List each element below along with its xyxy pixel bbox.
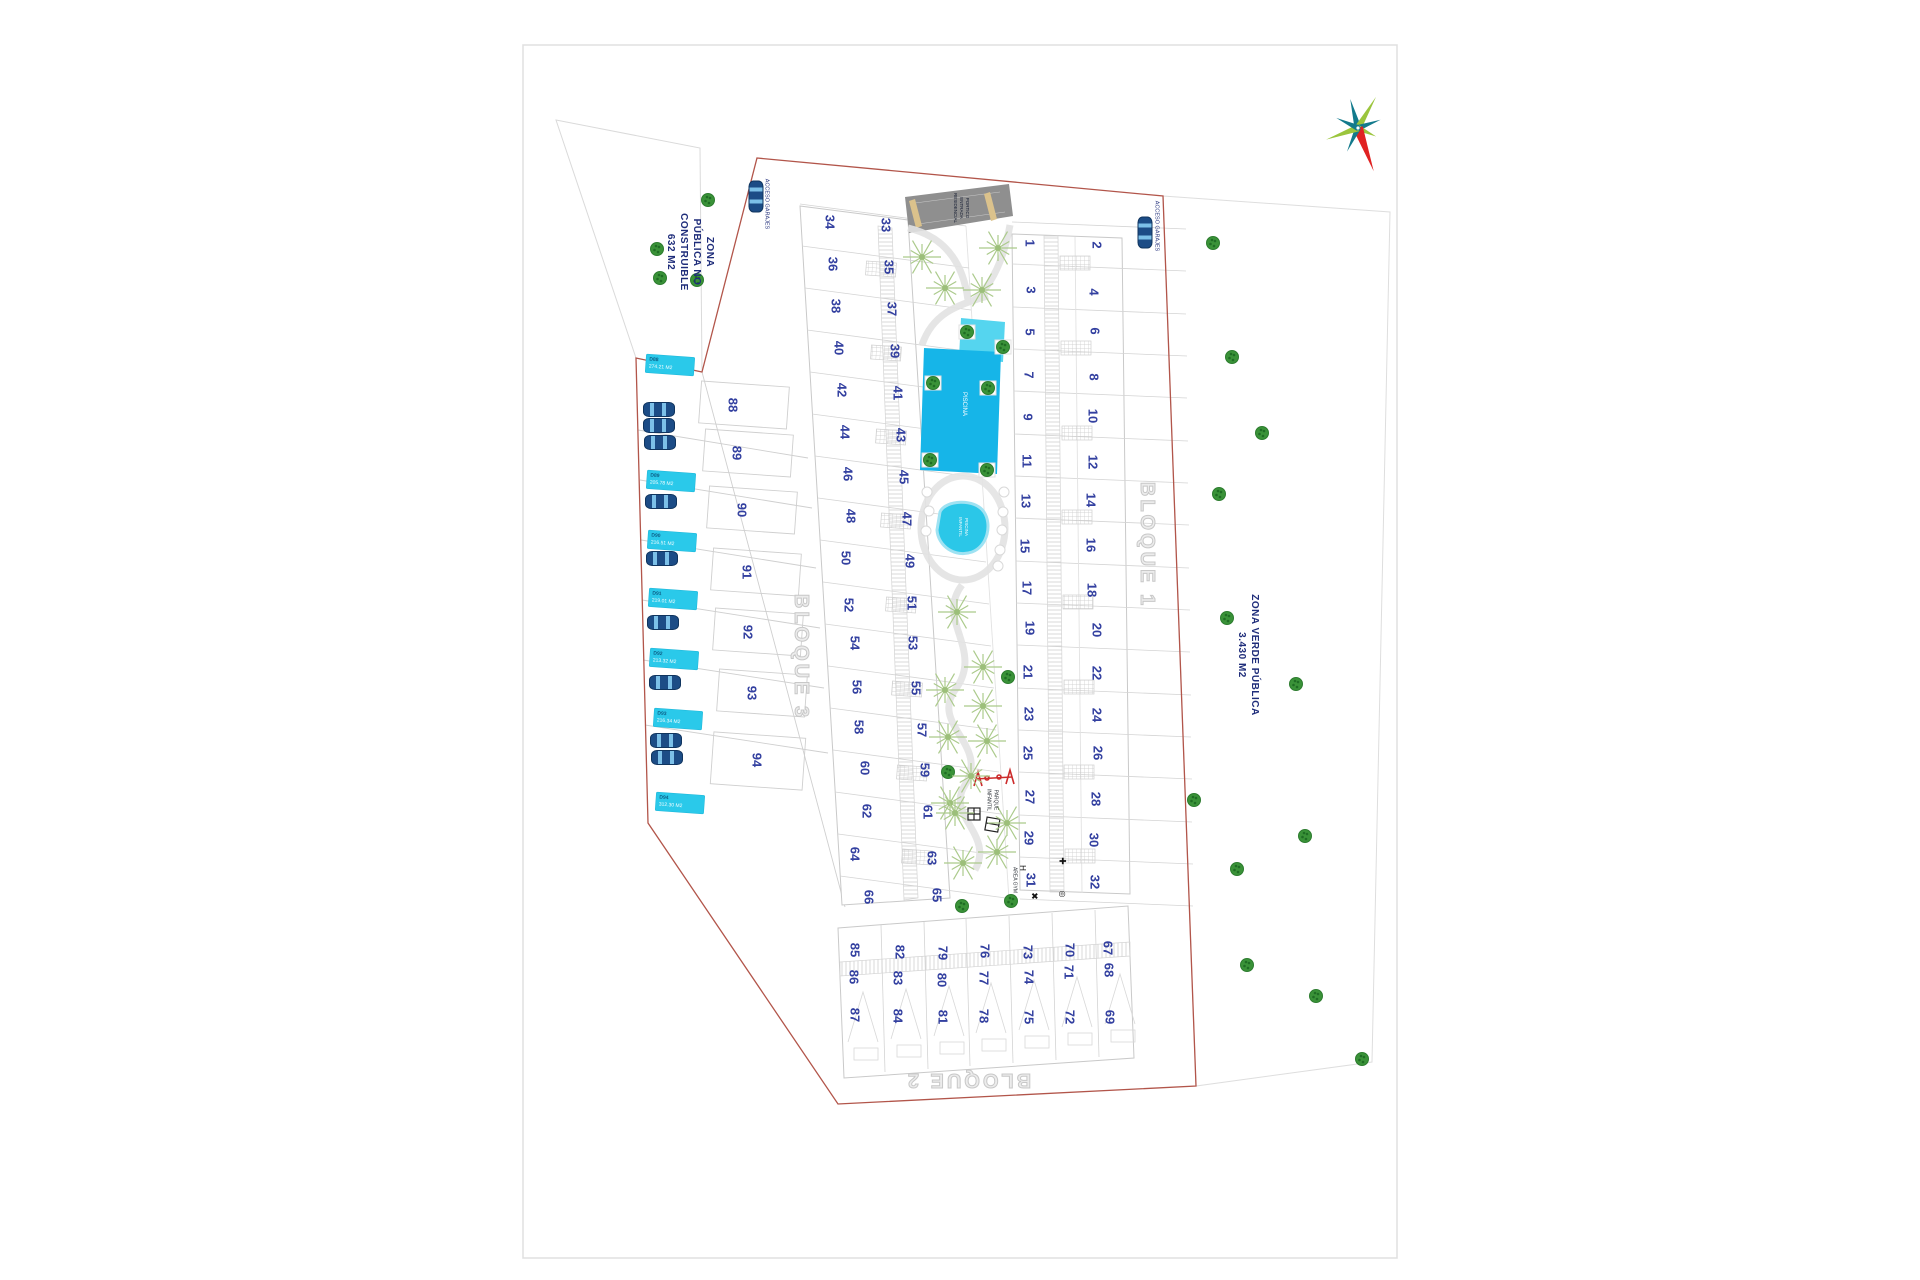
plot-number: 84 [892,1009,905,1023]
plot-number: 92 [742,625,755,639]
plot-number: 32 [1089,875,1102,889]
plot-number: 72 [1064,1010,1077,1024]
villa-area-label: D89205.78 M2 [646,470,695,491]
plot-number: 25 [1022,746,1035,760]
car-icon [647,615,679,630]
plot-number: 15 [1019,539,1032,553]
bloque-1-line: BLOQUE 1 [1134,482,1160,608]
plot-number: 14 [1085,493,1098,507]
zona-publica-no-construible-label: ZONAPÚBLICA NOCONSTRUIBLE632 M2 [664,213,716,291]
bloque-2-line: BLOQUE 2 [905,1067,1031,1093]
plot-number: 20 [1091,623,1104,637]
plot-number: 69 [1104,1010,1117,1024]
plot-number: 45 [898,470,911,484]
piscina-infantil-line: PISCINA [963,517,969,537]
labels-overlay: 1357911131517192123252729312468101214161… [0,0,1920,1280]
zona-publica-no-construible-line: CONSTRUIBLE [677,213,690,291]
plot-number: 5 [1024,328,1037,335]
plot-number: 55 [910,681,923,695]
plot-number: 85 [849,943,862,957]
plot-number: 52 [843,598,856,612]
parque-infantil-line: PARQUE [992,789,999,811]
gym-equipment-icon: H [1018,865,1026,871]
plot-number: 44 [839,425,852,439]
parque-infantil-label: PARQUEINFANTIL [986,789,999,811]
plot-number: 13 [1020,494,1033,508]
plot-number: 10 [1087,409,1100,423]
portico-entrada-line: PORTICO [964,193,970,223]
plot-number: 62 [861,804,874,818]
plot-number: 16 [1085,538,1098,552]
plot-number: 11 [1021,454,1034,468]
plot-number: 51 [906,596,919,610]
plot-number: 66 [863,890,876,904]
plot-number: 93 [746,686,759,700]
plot-number: 68 [1103,963,1116,977]
villa-area-label: D92213.32 M2 [649,648,698,669]
plot-number: 78 [978,1009,991,1023]
plot-number: 36 [827,257,840,271]
plot-number: 23 [1023,707,1036,721]
plot-number: 19 [1024,621,1037,635]
plot-number: 4 [1088,288,1101,295]
plot-number: 65 [931,888,944,902]
area-gym-line: AREA GYM [1011,867,1018,893]
plot-number: 47 [901,512,914,526]
car-icon [1138,217,1153,249]
bloque-3-label: BLOQUE 3 [788,594,814,720]
plot-number: 64 [849,847,862,861]
plot-number: 77 [978,971,991,985]
plot-number: 42 [836,383,849,397]
plot-number: 37 [886,302,899,316]
plot-number: 22 [1091,666,1104,680]
plot-number: 7 [1023,371,1036,378]
acceso-garajes-left-line: ACCESO GARAJES [762,179,769,229]
car-icon [645,494,677,509]
plot-number: 82 [894,945,907,959]
piscina-infantil-line: INFANTIL [957,517,963,537]
car-icon [749,181,764,213]
car-icon [644,435,676,450]
villa-area-label: D90216.51 M2 [647,530,696,551]
plot-number: 18 [1086,583,1099,597]
plot-number: 17 [1021,581,1034,595]
acceso-garajes-left-label: ACCESO GARAJES [762,179,769,229]
zona-verde-publica-label: ZONA VERDE PÚBLICA3.430 M2 [1235,594,1261,715]
plot-number: 26 [1092,746,1105,760]
parque-infantil-line: INFANTIL [986,789,993,811]
plot-number: 12 [1087,455,1100,469]
plot-number: 87 [849,1008,862,1022]
plot-number: 24 [1091,708,1104,722]
plot-number: 81 [937,1010,950,1024]
plot-number: 57 [916,723,929,737]
villa-area-label: D91219.01 M2 [648,588,697,609]
car-icon [646,551,678,566]
plot-number: 38 [830,299,843,313]
car-icon [643,418,675,433]
zona-publica-no-construible-line: 632 M2 [664,213,677,291]
piscina-line: PISCINA [959,392,967,416]
plot-number: 48 [845,509,858,523]
plot-number: 1 [1024,239,1037,246]
piscina-label: PISCINA [959,392,967,416]
plot-number: 91 [741,565,754,579]
plot-number: 34 [824,215,837,229]
plot-number: 90 [736,503,749,517]
plot-number: 33 [880,218,893,232]
zona-publica-no-construible-line: PÚBLICA NO [690,213,703,291]
plot-number: 73 [1022,945,1035,959]
plot-number: 27 [1024,790,1037,804]
plot-number: 41 [892,386,905,400]
plot-number: 80 [936,973,949,987]
plot-number: 59 [919,763,932,777]
plot-number: 31 [1025,873,1038,887]
area-gym-label: AREA GYM [1011,867,1018,893]
plot-number: 67 [1102,941,1115,955]
villa-area-label: D94312.30 M2 [655,792,704,813]
gym-equipment-icon: ✖ [1030,892,1039,900]
plot-number: 49 [904,554,917,568]
zona-verde-publica-line: ZONA VERDE PÚBLICA [1248,594,1261,715]
plot-number: 76 [979,944,992,958]
plot-number: 86 [848,970,861,984]
plot-number: 71 [1063,965,1076,979]
plot-number: 53 [907,636,920,650]
plot-number: 75 [1023,1010,1036,1024]
plot-number: 56 [851,680,864,694]
portico-entrada-line: ENTRADA [958,193,964,223]
plot-number: 79 [937,946,950,960]
plot-number: 40 [833,341,846,355]
plot-number: 6 [1089,327,1102,334]
plot-number: 58 [853,720,866,734]
bloque-1-label: BLOQUE 1 [1134,482,1160,608]
acceso-garajes-right-label: ACCESO GARAJES [1152,201,1159,251]
plot-number: 39 [889,344,902,358]
plot-number: 74 [1023,970,1036,984]
plot-number: 89 [731,446,744,460]
plot-number: 94 [751,753,764,767]
plot-number: 9 [1022,413,1035,420]
bloque-2-label: BLOQUE 2 [905,1067,1031,1093]
portico-entrada-line: RESIDENCIAL [952,193,958,223]
villa-area-label: D93216.34 M2 [653,708,702,729]
plot-number: 46 [842,467,855,481]
gym-equipment-icon: ✚ [1058,857,1067,865]
plot-number: 30 [1088,833,1101,847]
zona-publica-no-construible-line: ZONA [703,213,716,291]
plot-number: 8 [1088,373,1101,380]
plot-number: 3 [1025,286,1038,293]
plot-number: 83 [892,971,905,985]
car-icon [649,675,681,690]
plot-number: 63 [926,851,939,865]
piscina-infantil-label: PISCINAINFANTIL [957,517,969,537]
plot-number: 50 [840,551,853,565]
plot-number: 88 [727,398,740,412]
acceso-garajes-right-line: ACCESO GARAJES [1152,201,1159,251]
car-icon [650,733,682,748]
plot-number: 60 [859,761,872,775]
car-icon [651,750,683,765]
plot-number: 43 [895,428,908,442]
plot-number: 29 [1023,831,1036,845]
portico-entrada-label: PORTICOENTRADARESIDENCIAL [952,193,970,223]
villa-area-label: D88274.21 M2 [645,354,694,375]
site-plan-page: 1357911131517192123252729312468101214161… [0,0,1920,1280]
bloque-3-line: BLOQUE 3 [788,594,814,720]
plot-number: 28 [1090,792,1103,806]
gym-equipment-icon: ◎ [1058,891,1066,898]
car-icon [643,402,675,417]
plot-number: 21 [1022,665,1035,679]
plot-number: 35 [883,260,896,274]
zona-verde-publica-line: 3.430 M2 [1235,594,1248,715]
plot-number: 70 [1064,943,1077,957]
plot-number: 61 [922,805,935,819]
plot-number: 54 [849,636,862,650]
plot-number: 2 [1091,241,1104,248]
